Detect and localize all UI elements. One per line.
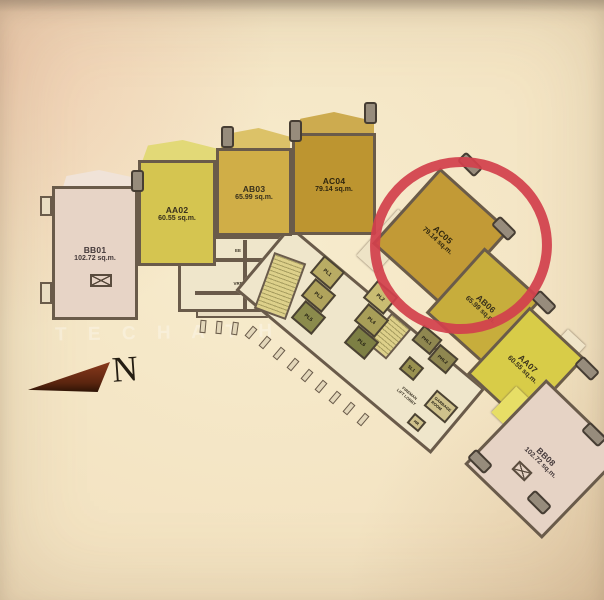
unit-ac04: AC04 79.14 sq.m.	[292, 133, 376, 235]
railing-tick	[301, 369, 314, 383]
floor-plan-photo: T E C H A T H O N S H O M E EE VRF PL1 P…	[0, 0, 604, 600]
unit-id: AA02	[166, 205, 189, 215]
unit-area: 102.72 sq.m.	[74, 255, 116, 262]
railing-tick	[357, 413, 370, 427]
corridor-ledge	[196, 310, 268, 318]
unit-area: 79.14 sq.m.	[315, 186, 353, 193]
railing-tick	[199, 320, 206, 333]
unit-area: 65.99 sq.m.	[235, 194, 273, 201]
railing-tick	[343, 402, 356, 416]
vent-pipe	[131, 170, 144, 192]
ac-ledge	[40, 282, 52, 304]
unit-area: 60.55 sq.m.	[158, 215, 196, 222]
railing-tick	[215, 321, 222, 334]
unit-id: AB03	[243, 184, 266, 194]
railing-tick	[329, 391, 342, 405]
photo-edge-shading	[0, 0, 604, 12]
unit-id: AC04	[323, 176, 346, 186]
unit-ab03: AB03 65.99 sq.m.	[216, 148, 292, 236]
railing-tick	[287, 358, 300, 372]
unit-id: BB01	[84, 245, 107, 255]
north-label: N	[111, 347, 140, 391]
north-arrow-icon	[28, 362, 110, 392]
vent-pipe	[574, 355, 600, 381]
vent-pipe	[289, 120, 302, 142]
railing-tick	[315, 380, 328, 394]
room-ee-label: EE	[228, 248, 248, 254]
vent-pipe	[221, 126, 234, 148]
balcony	[142, 140, 216, 162]
unit-bb01: BB01 102.72 sq.m.	[52, 186, 138, 320]
unit-aa02: AA02 60.55 sq.m.	[138, 160, 216, 266]
window-symbol	[90, 274, 112, 287]
vent-pipe	[364, 102, 377, 124]
ac-ledge	[40, 196, 52, 216]
railing-tick	[273, 347, 286, 361]
